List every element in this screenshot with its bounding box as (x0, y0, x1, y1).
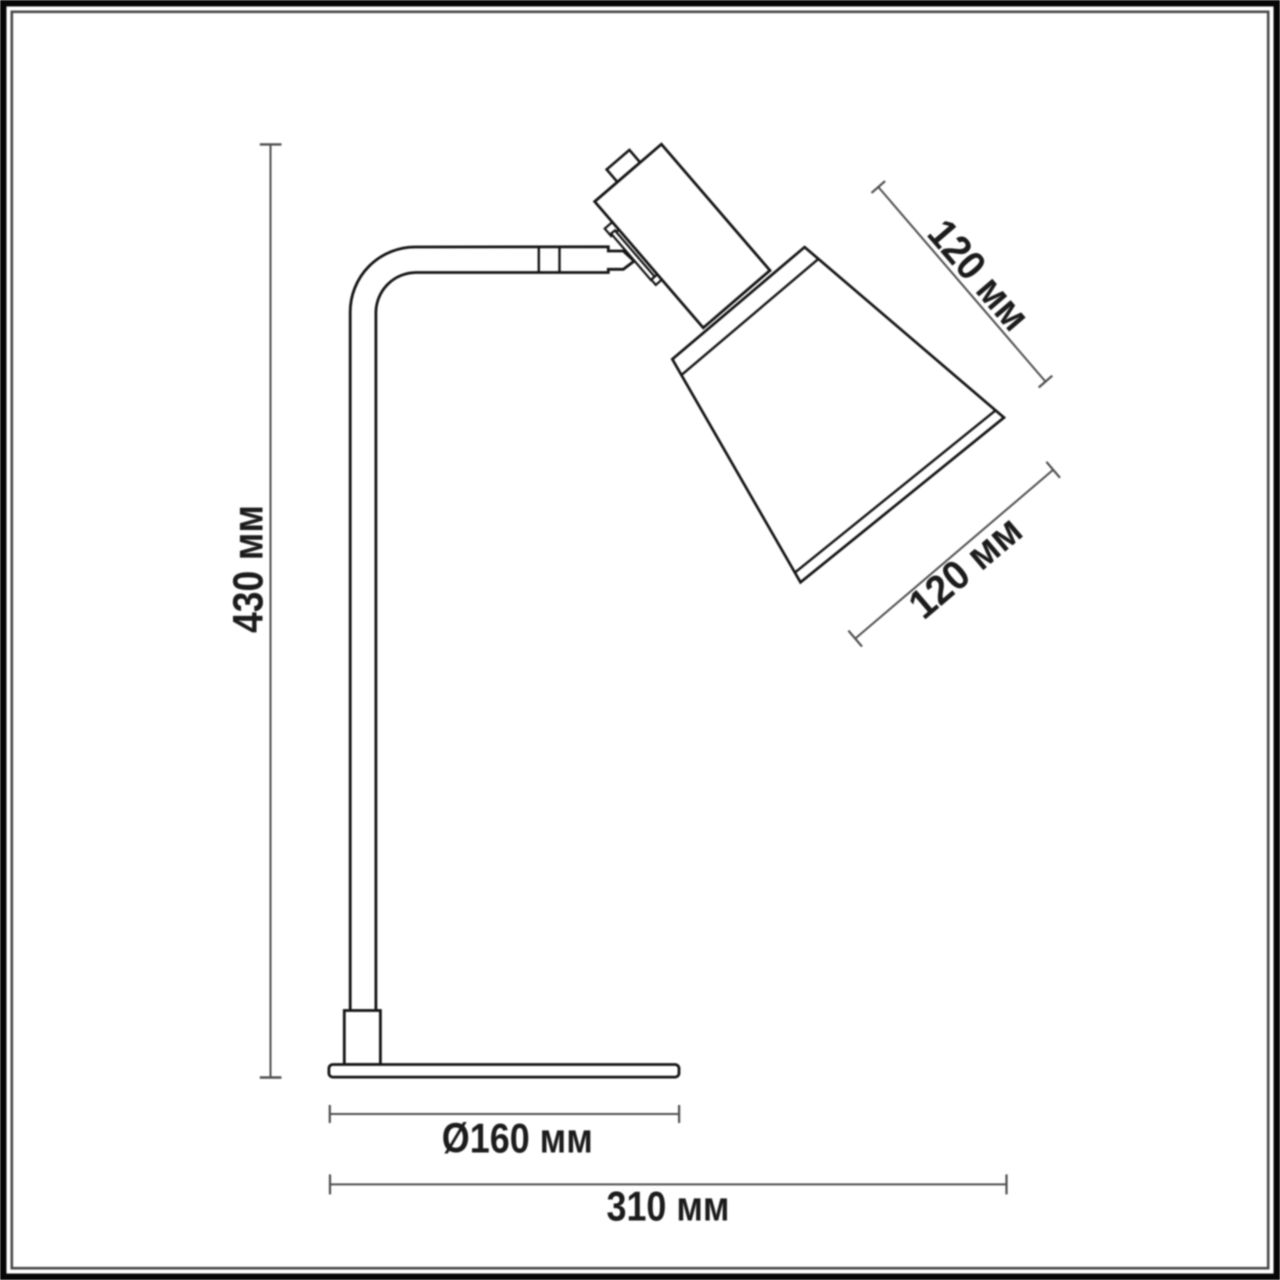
svg-text:310 мм: 310 мм (607, 1183, 730, 1230)
svg-text:430 мм: 430 мм (225, 505, 273, 633)
svg-text:Ø160 мм: Ø160 мм (442, 1114, 593, 1161)
